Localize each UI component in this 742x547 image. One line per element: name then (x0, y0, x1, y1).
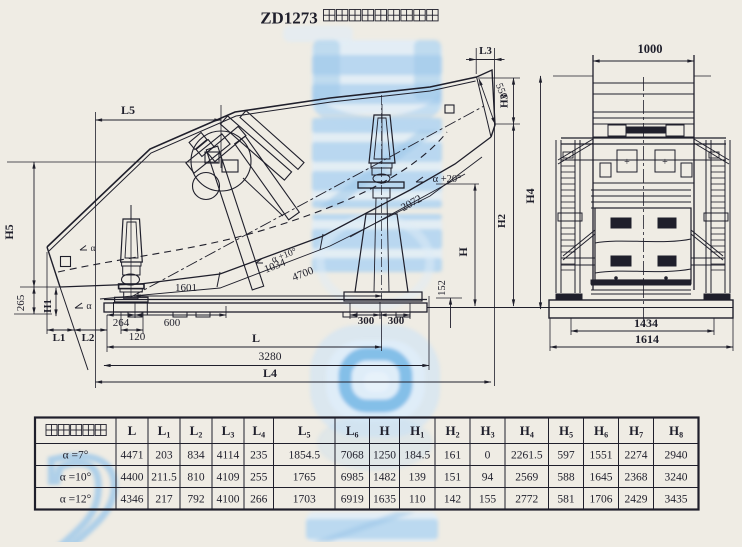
svg-text:2368: 2368 (625, 472, 648, 484)
svg-text:1000: 1000 (638, 42, 663, 56)
svg-text:588: 588 (557, 472, 575, 484)
svg-text:H1: H1 (43, 299, 54, 312)
svg-text:6985: 6985 (341, 472, 364, 484)
svg-text:110: 110 (409, 494, 426, 506)
svg-text:L2: L2 (82, 332, 95, 344)
svg-text:0: 0 (485, 450, 491, 462)
svg-text:792: 792 (187, 494, 205, 506)
svg-text:184.5: 184.5 (404, 450, 430, 462)
svg-text:1765: 1765 (293, 472, 316, 484)
svg-text:255: 255 (250, 472, 268, 484)
svg-text:2274: 2274 (625, 450, 648, 462)
svg-text:300: 300 (358, 315, 375, 327)
svg-text:4471: 4471 (121, 450, 144, 462)
svg-text:α =12°: α =12° (60, 494, 92, 506)
svg-text:94: 94 (482, 472, 494, 484)
svg-text:600: 600 (164, 317, 181, 329)
svg-text:1635: 1635 (373, 494, 396, 506)
svg-text:810: 810 (187, 472, 205, 484)
svg-text:300: 300 (388, 315, 405, 327)
svg-text:H2: H2 (496, 213, 508, 228)
svg-text:151: 151 (444, 472, 462, 484)
svg-text:H: H (379, 423, 389, 438)
svg-text:1250: 1250 (373, 450, 396, 462)
svg-text:α: α (86, 301, 92, 312)
svg-text:1706: 1706 (590, 494, 613, 506)
svg-text:H4: H4 (523, 188, 537, 203)
svg-text:1614: 1614 (635, 332, 659, 346)
svg-text:L5: L5 (121, 103, 135, 117)
svg-text:266: 266 (250, 494, 268, 506)
svg-text:152: 152 (437, 280, 448, 296)
svg-text:3280: 3280 (259, 351, 282, 363)
svg-text:120: 120 (129, 331, 146, 343)
svg-text:4400: 4400 (121, 472, 144, 484)
svg-text:1482: 1482 (373, 472, 396, 484)
svg-text:3240: 3240 (665, 472, 688, 484)
svg-text:1434: 1434 (634, 316, 658, 330)
svg-text:+: + (624, 157, 630, 168)
svg-text:265: 265 (15, 294, 27, 311)
svg-text:155: 155 (479, 494, 497, 506)
svg-text:L1: L1 (53, 332, 66, 344)
svg-text:1551: 1551 (590, 450, 613, 462)
svg-text:203: 203 (155, 450, 173, 462)
svg-text:4346: 4346 (121, 494, 144, 506)
svg-text:3435: 3435 (665, 494, 688, 506)
svg-text:834: 834 (187, 450, 205, 462)
svg-text:2569: 2569 (515, 472, 538, 484)
svg-text:L4: L4 (263, 366, 277, 380)
svg-text:4100: 4100 (217, 494, 240, 506)
svg-text:211.5: 211.5 (151, 472, 177, 484)
svg-text:1703: 1703 (293, 494, 316, 506)
svg-text:H: H (456, 247, 470, 257)
svg-text:H5: H5 (2, 224, 16, 239)
svg-text:142: 142 (444, 494, 462, 506)
svg-text:2429: 2429 (625, 494, 648, 506)
svg-text:217: 217 (155, 494, 173, 506)
svg-text:1854.5: 1854.5 (288, 450, 320, 462)
svg-text:L: L (252, 331, 260, 345)
svg-text:ZD1273: ZD1273 (260, 9, 318, 28)
svg-text:4114: 4114 (217, 450, 240, 462)
svg-text:α =7°: α =7° (63, 450, 89, 462)
svg-text:2772: 2772 (515, 494, 538, 506)
svg-text:L3: L3 (479, 45, 492, 57)
svg-text:4109: 4109 (217, 472, 240, 484)
svg-text:α: α (91, 243, 96, 253)
svg-text:6919: 6919 (341, 494, 364, 506)
svg-text:7068: 7068 (341, 450, 364, 462)
svg-text:597: 597 (557, 450, 575, 462)
svg-text:α =10°: α =10° (60, 472, 92, 484)
svg-text:235: 235 (250, 450, 268, 462)
svg-text:139: 139 (409, 472, 427, 484)
svg-text:2940: 2940 (665, 450, 688, 462)
svg-text:1645: 1645 (590, 472, 613, 484)
svg-text:L: L (128, 423, 137, 438)
svg-text:2261.5: 2261.5 (511, 450, 543, 462)
svg-text:+: + (662, 157, 668, 168)
svg-text:581: 581 (557, 494, 575, 506)
svg-text:161: 161 (444, 450, 462, 462)
